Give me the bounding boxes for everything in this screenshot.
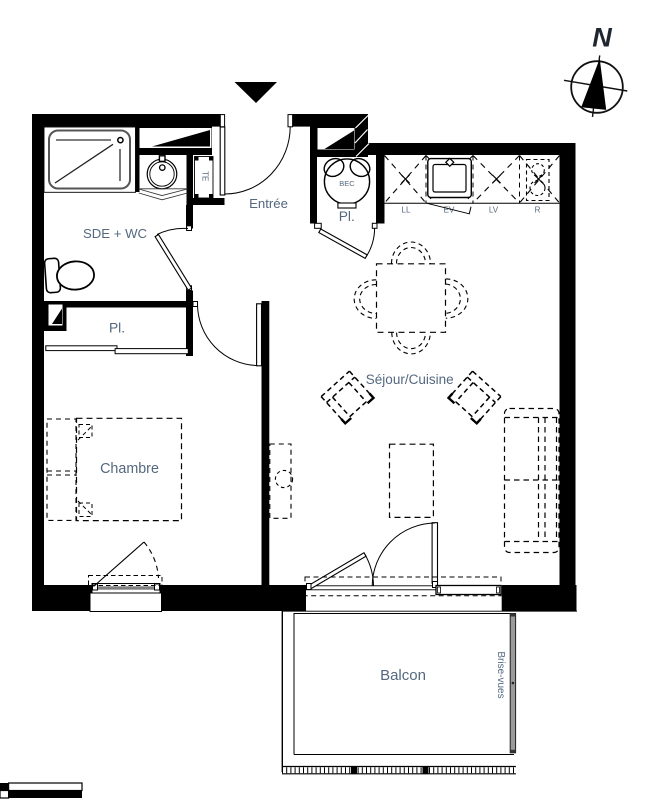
svg-text:SDE + WC: SDE + WC [83, 226, 148, 241]
svg-text:Entrée: Entrée [249, 196, 288, 211]
svg-text:R: R [535, 206, 541, 215]
svg-text:Balcon: Balcon [380, 667, 426, 684]
svg-text:LV: LV [489, 206, 499, 215]
svg-text:Séjour/Cuisine: Séjour/Cuisine [366, 372, 454, 387]
svg-text:BEC: BEC [339, 179, 355, 188]
svg-text:TE: TE [200, 171, 209, 181]
svg-text:N: N [592, 23, 612, 53]
svg-text:Chambre: Chambre [100, 461, 159, 477]
svg-text:Pl.: Pl. [109, 321, 125, 336]
svg-text:LL: LL [402, 206, 411, 215]
svg-text:Pl.: Pl. [339, 209, 355, 224]
svg-text:Brise-vues: Brise-vues [495, 651, 506, 698]
